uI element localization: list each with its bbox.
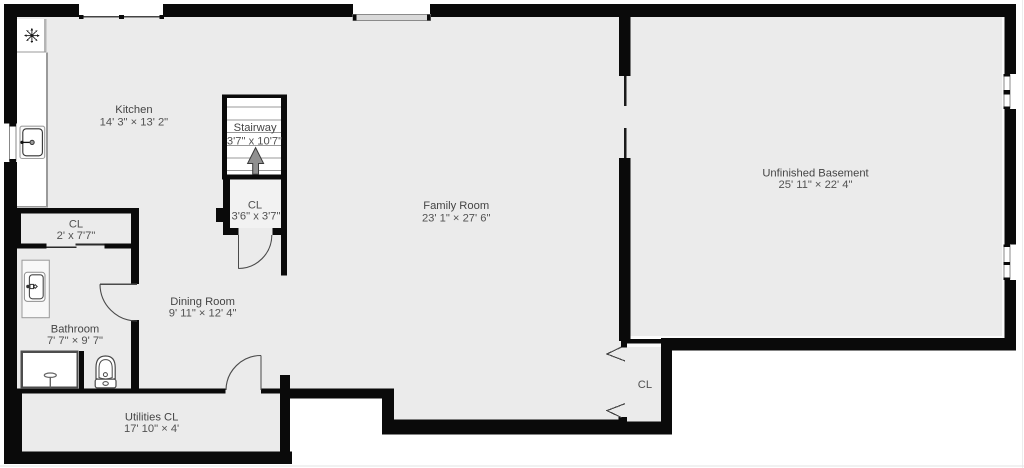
svg-text:25' 11" × 22' 4": 25' 11" × 22' 4" — [779, 179, 853, 191]
svg-text:3'7" x 10'7": 3'7" x 10'7" — [227, 135, 282, 147]
svg-text:Stairway: Stairway — [234, 122, 277, 134]
svg-text:CL: CL — [638, 379, 652, 391]
svg-text:Kitchen: Kitchen — [115, 104, 152, 116]
svg-text:Unfinished Basement: Unfinished Basement — [762, 168, 869, 180]
svg-text:2' x 7'7": 2' x 7'7" — [57, 230, 96, 242]
svg-text:17' 10" × 4': 17' 10" × 4' — [124, 423, 179, 435]
svg-text:Utilities CL: Utilities CL — [125, 412, 178, 424]
svg-text:7' 7" × 9' 7": 7' 7" × 9' 7" — [47, 335, 103, 347]
svg-text:9' 11" × 12' 4": 9' 11" × 12' 4" — [169, 308, 237, 320]
svg-text:CL: CL — [69, 219, 83, 231]
svg-text:Bathroom: Bathroom — [51, 323, 100, 335]
svg-text:Dining Room: Dining Room — [170, 296, 235, 308]
svg-text:3'6" x 3'7": 3'6" x 3'7" — [232, 210, 281, 222]
svg-text:Family Room: Family Room — [423, 200, 489, 212]
svg-text:23' 1" × 27' 6": 23' 1" × 27' 6" — [422, 213, 491, 225]
svg-text:14' 3" × 13' 2": 14' 3" × 13' 2" — [100, 117, 169, 129]
